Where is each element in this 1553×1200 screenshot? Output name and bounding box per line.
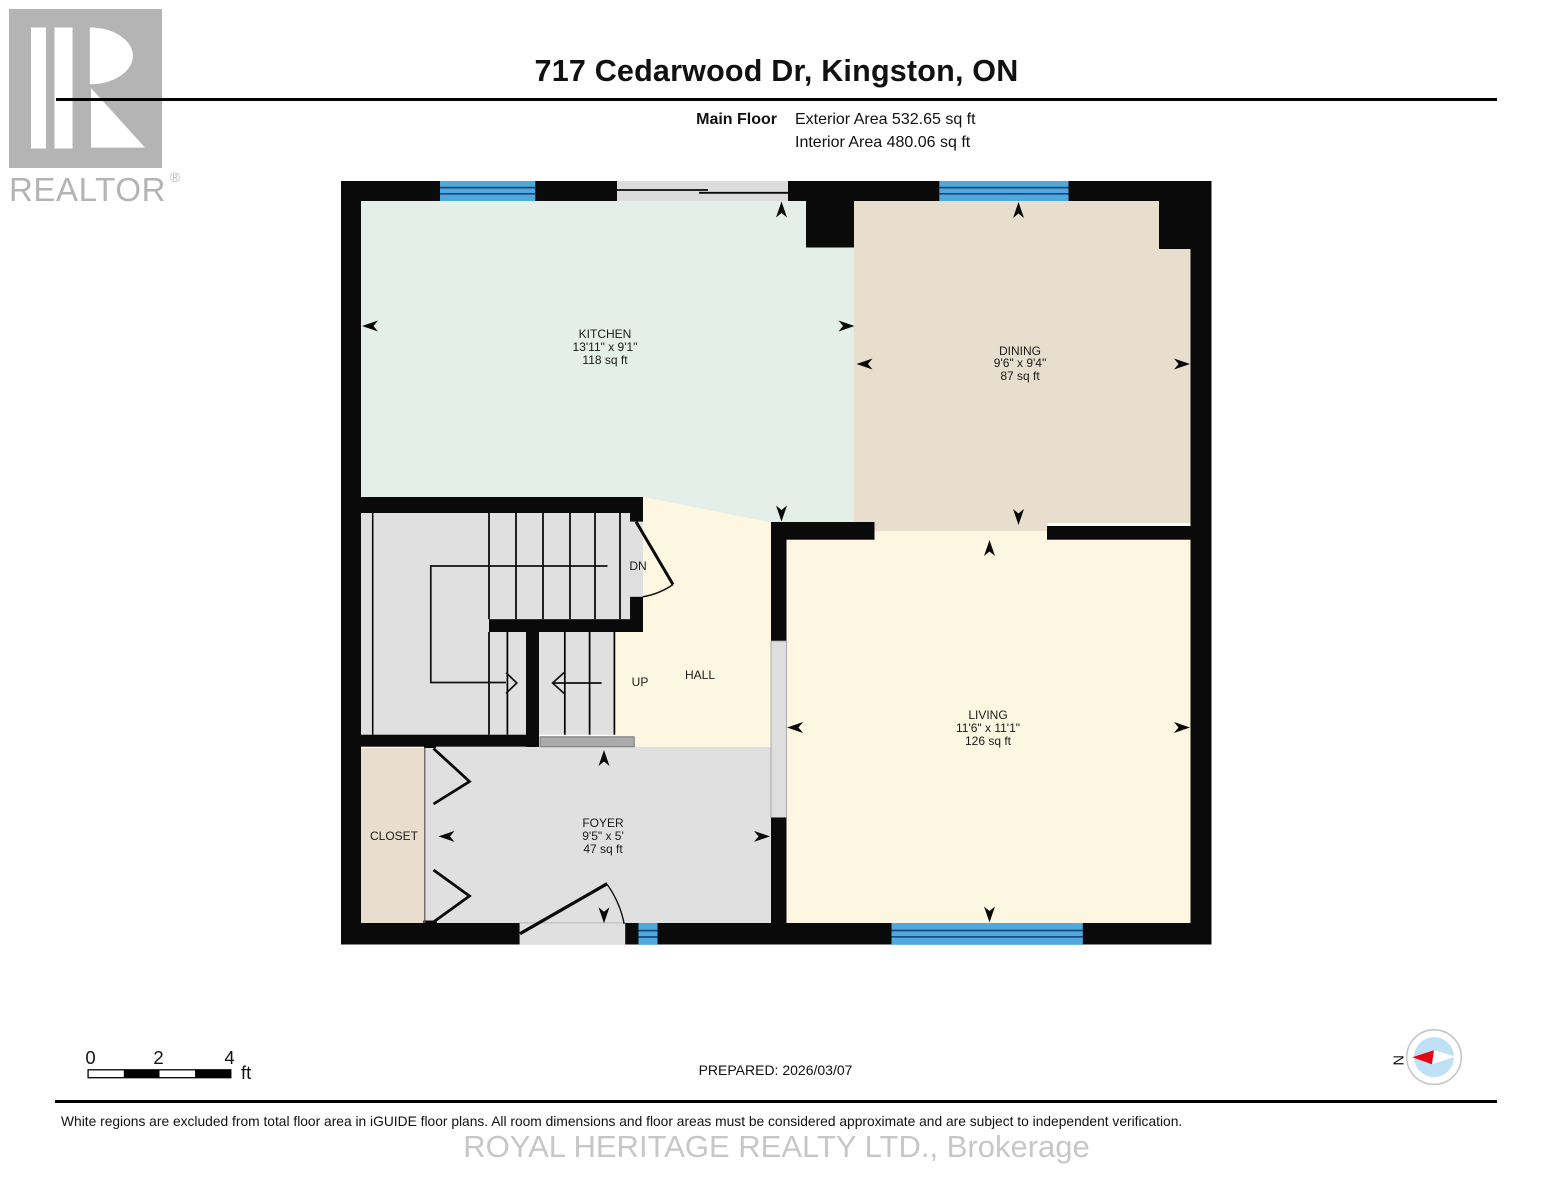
svg-text:N: N xyxy=(1391,1055,1407,1065)
